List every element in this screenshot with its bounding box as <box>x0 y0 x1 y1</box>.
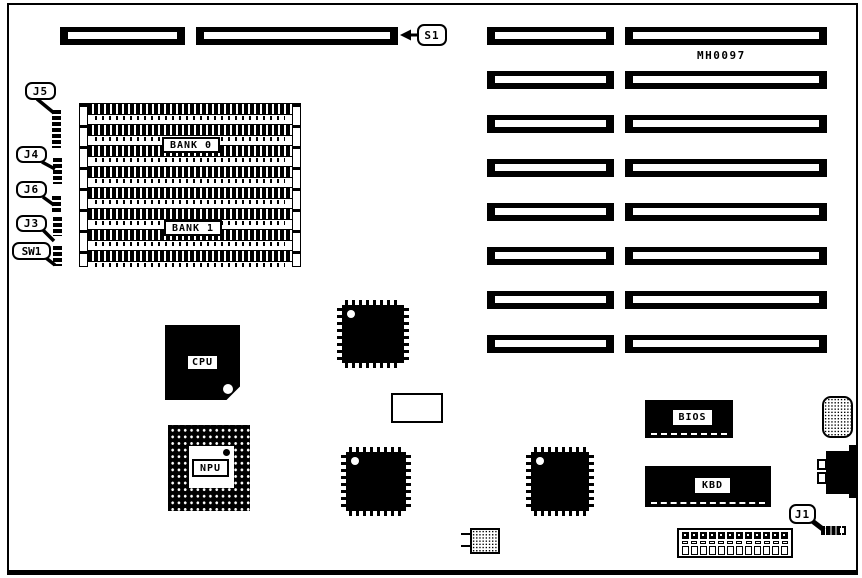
chip-pins <box>349 511 403 516</box>
expansion-slot <box>625 247 827 265</box>
power-pin <box>700 532 707 539</box>
chip-pins <box>349 447 403 452</box>
expansion-slot <box>625 203 827 221</box>
chip-pins <box>341 455 346 508</box>
expansion-slot <box>625 115 827 133</box>
expansion-slot <box>625 291 827 309</box>
slot-stripe <box>633 76 819 83</box>
power-pin <box>709 546 716 555</box>
expansion-slot <box>487 71 614 89</box>
power-pin <box>682 532 689 539</box>
oscillator <box>391 393 443 423</box>
simm-socket-row <box>88 103 292 120</box>
cpu-chip: CPU <box>165 325 240 400</box>
power-pin <box>700 546 707 555</box>
power-pin <box>764 541 770 544</box>
power-pin <box>727 546 734 555</box>
expansion-slot <box>625 27 827 45</box>
simm-socket-pins <box>95 116 285 120</box>
simm-socket-pins <box>95 158 285 162</box>
slot-stripe <box>633 252 819 259</box>
expansion-slot <box>487 335 614 353</box>
j3-pin-header <box>53 217 62 236</box>
cpu-pin1-dot <box>223 384 233 394</box>
j1-pin1-mark <box>840 528 844 533</box>
chip-pins <box>589 455 594 508</box>
bank0-label: BANK 0 <box>162 137 220 153</box>
simm-socket-bar <box>88 103 292 115</box>
slot-stripe <box>495 32 606 39</box>
expansion-slot <box>487 27 614 45</box>
expansion-slot <box>625 71 827 89</box>
simm-socket-bar <box>88 187 292 199</box>
power-pin <box>745 546 752 555</box>
simm-sockets <box>88 103 292 267</box>
slot-stripe <box>204 32 390 39</box>
callout-j4: J4 <box>16 146 47 163</box>
cpu-label: CPU <box>186 354 219 371</box>
power-pin <box>772 546 779 555</box>
simm-socket-row <box>88 250 292 267</box>
expansion-column-right <box>625 27 827 353</box>
bank1-label: BANK 1 <box>164 220 222 236</box>
callout-sw1: SW1 <box>12 242 51 260</box>
chip-notch <box>651 502 765 504</box>
power-pin <box>754 532 761 539</box>
j4-pin-header <box>53 158 62 184</box>
power-pin <box>763 532 770 539</box>
power-pin-row-bottom <box>682 546 788 555</box>
chip-pins <box>534 447 586 452</box>
expansion-slot <box>487 291 614 309</box>
top-slot-a <box>60 27 185 45</box>
chip-pin1-dot <box>536 457 544 465</box>
j5-pin-header <box>52 110 61 148</box>
power-pin <box>709 532 716 539</box>
expansion-slot <box>487 159 614 177</box>
j1-connector <box>821 526 847 535</box>
power-pin <box>682 546 689 555</box>
simm-rail-left <box>79 103 88 267</box>
simm-socket-row <box>88 166 292 183</box>
expansion-slot <box>487 247 614 265</box>
din-connector-edge <box>849 445 858 498</box>
chip-notch <box>651 433 727 435</box>
callout-j5: J5 <box>25 82 56 100</box>
slot-stripe <box>495 76 606 83</box>
power-pin <box>718 546 725 555</box>
simm-socket-pins <box>95 179 285 183</box>
npu-label: NPU <box>192 459 229 477</box>
power-pin <box>781 532 788 539</box>
power-pin-row-mid <box>682 541 788 544</box>
power-pin <box>700 541 706 544</box>
callout-j6: J6 <box>16 181 47 198</box>
slot-stripe <box>633 296 819 303</box>
expansion-slot <box>487 203 614 221</box>
power-pin <box>781 546 788 555</box>
slot-stripe <box>633 32 819 39</box>
simm-socket-bar <box>88 250 292 262</box>
power-pin <box>754 546 761 555</box>
bios-chip: BIOS <box>645 400 733 438</box>
slot-stripe <box>68 32 177 39</box>
din-connector-body <box>826 451 850 494</box>
power-pin <box>736 546 743 555</box>
simm-socket-bar <box>88 208 292 220</box>
slot-stripe <box>495 296 606 303</box>
power-pin <box>691 541 697 544</box>
slot-stripe <box>633 340 819 347</box>
power-pin <box>718 541 724 544</box>
j6-pin-header <box>52 196 61 213</box>
chip-pin1-dot <box>351 457 359 465</box>
power-pin <box>691 546 698 555</box>
qfp-chip-2 <box>346 452 406 511</box>
power-pin <box>736 532 743 539</box>
chip-pins <box>534 511 586 516</box>
slot-stripe <box>495 164 606 171</box>
expansion-slot <box>625 159 827 177</box>
qfp-chip-3 <box>531 452 589 511</box>
power-pin <box>745 532 752 539</box>
power-pin <box>682 541 688 544</box>
crystal-lead <box>461 533 470 535</box>
simm-socket-bar <box>88 124 292 136</box>
simm-socket-bar <box>88 166 292 178</box>
bios-label: BIOS <box>672 409 713 426</box>
crystal-lead <box>461 545 470 547</box>
motherboard-diagram: MH0097 S1 J5 J4 J6 J3 SW1 J1 <box>0 0 862 578</box>
kbd-label: KBD <box>694 477 731 494</box>
kbd-chip: KBD <box>645 466 771 507</box>
sw1-dip-switch <box>53 246 62 266</box>
callout-s1: S1 <box>417 24 447 46</box>
din-connector-pin <box>817 459 827 470</box>
power-connector <box>677 528 793 558</box>
slot-stripe <box>495 340 606 347</box>
npu-socket: NPU <box>168 425 250 511</box>
simm-socket-pins <box>95 263 285 267</box>
chip-pins <box>345 300 401 305</box>
power-pin <box>727 541 733 544</box>
slot-stripe <box>633 208 819 215</box>
npu-socket-center: NPU <box>189 446 234 488</box>
power-pin <box>691 532 698 539</box>
slot-stripe <box>633 120 819 127</box>
chip-pins <box>526 455 531 508</box>
expansion-column-left <box>487 27 614 353</box>
qfp-chip-1 <box>342 305 404 363</box>
simm-socket-row <box>88 187 292 204</box>
power-pin <box>736 541 742 544</box>
crystal <box>470 528 500 554</box>
part-number: MH0097 <box>697 49 746 62</box>
keyboard-connector <box>822 396 853 438</box>
top-slot-b <box>196 27 398 45</box>
expansion-slot <box>487 115 614 133</box>
din-connector-pin <box>817 472 827 484</box>
power-pin-row-top <box>682 532 788 539</box>
slot-stripe <box>495 208 606 215</box>
power-pin <box>718 532 725 539</box>
power-pin <box>755 541 761 544</box>
simm-rail-right <box>292 103 301 267</box>
slot-stripe <box>495 252 606 259</box>
power-pin <box>772 532 779 539</box>
simm-socket-pins <box>95 242 285 246</box>
expansion-slot <box>625 335 827 353</box>
power-pin <box>763 546 770 555</box>
power-pin <box>773 541 779 544</box>
chip-pins <box>345 363 401 368</box>
chip-pins <box>406 455 411 508</box>
slot-stripe <box>495 120 606 127</box>
power-pin <box>727 532 734 539</box>
chip-pin1-dot <box>347 310 355 318</box>
power-pin <box>709 541 715 544</box>
npu-pin1-dot <box>223 449 230 456</box>
power-pin <box>782 541 788 544</box>
callout-j1: J1 <box>789 504 816 524</box>
callout-j3: J3 <box>16 215 47 232</box>
power-pin <box>746 541 752 544</box>
chip-pins <box>337 308 342 360</box>
simm-socket-pins <box>95 200 285 204</box>
chip-pins <box>404 308 409 360</box>
slot-stripe <box>633 164 819 171</box>
